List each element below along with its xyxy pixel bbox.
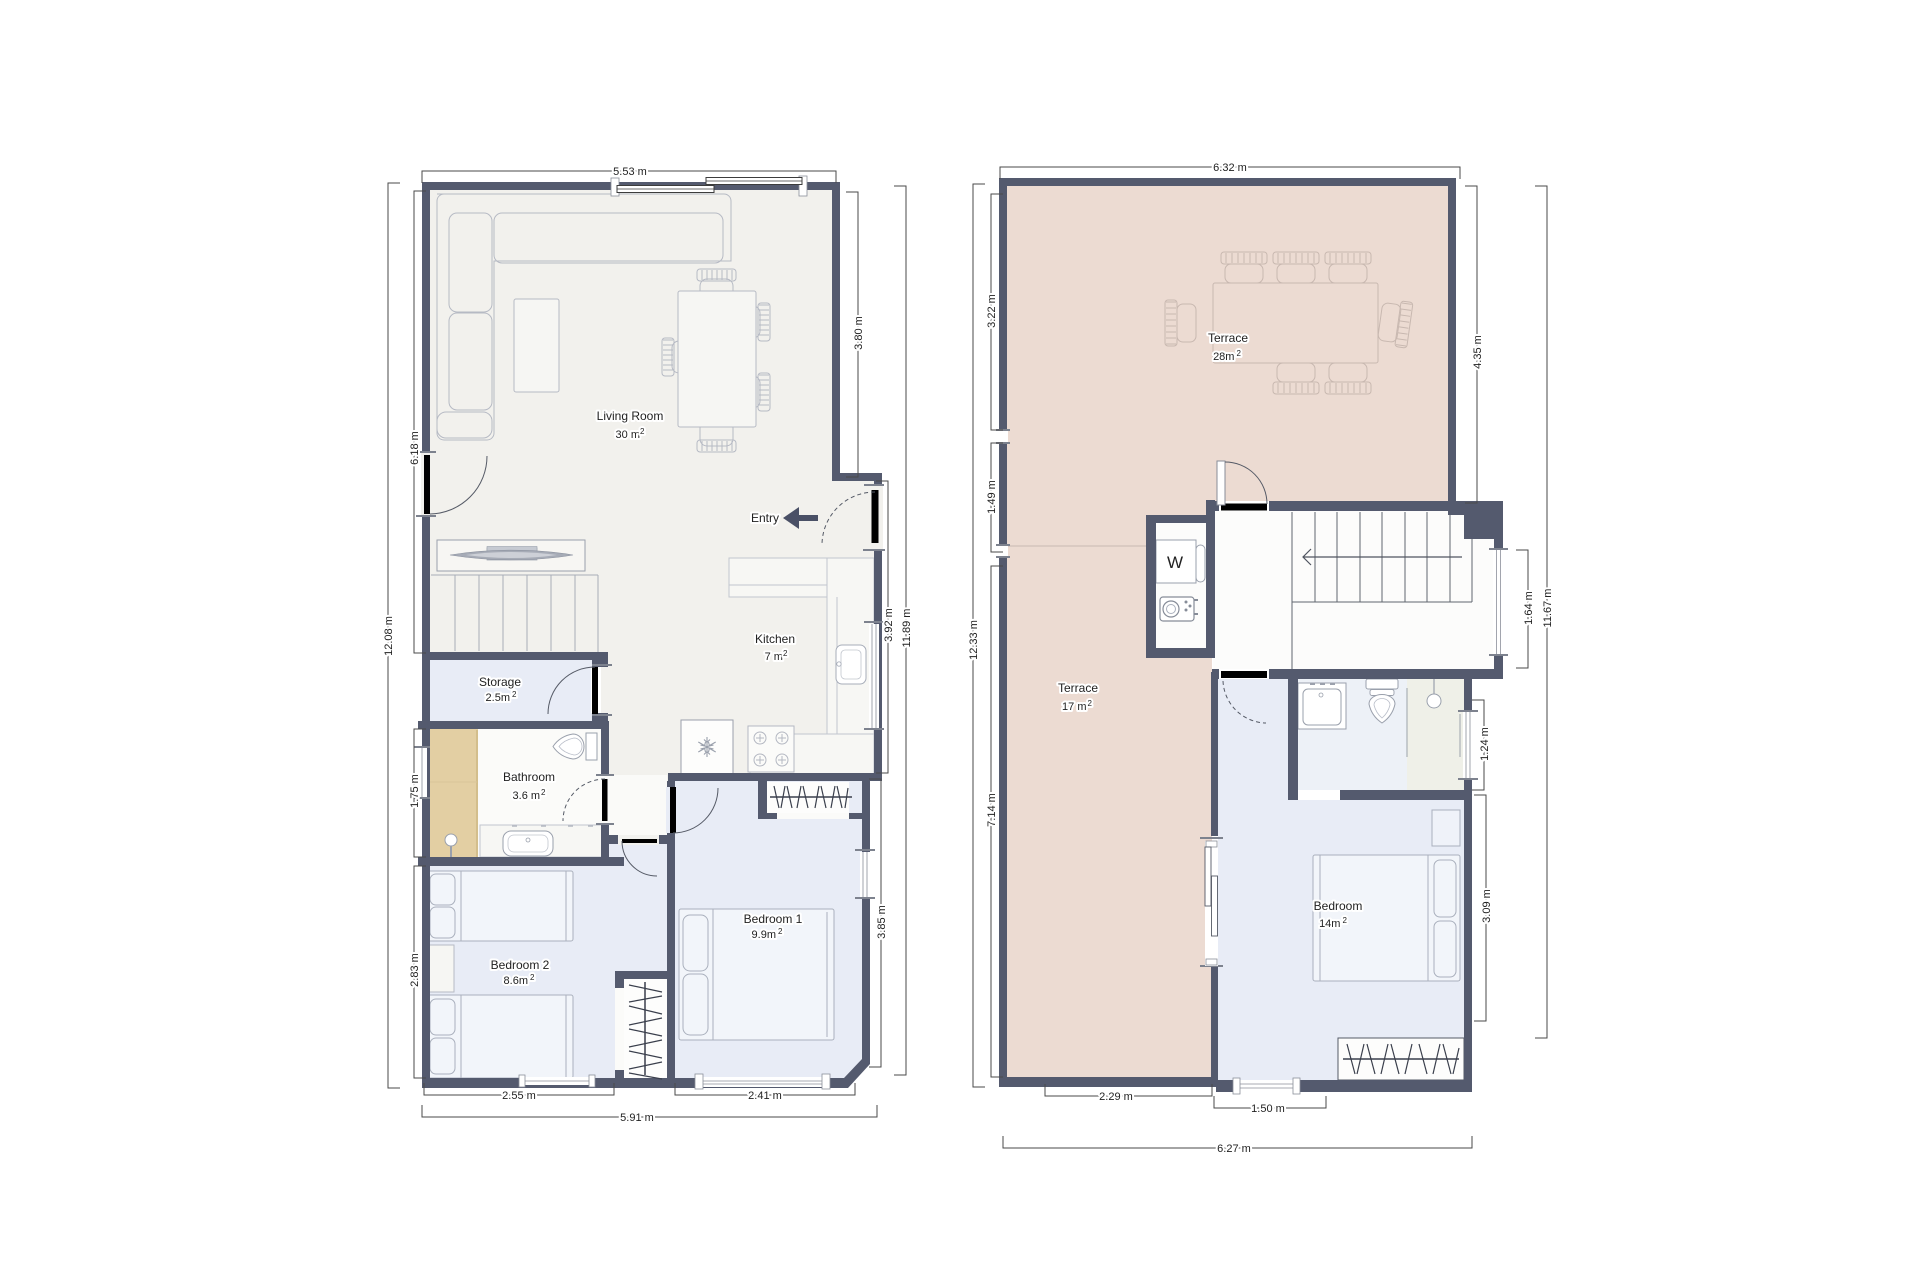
svg-text:7.14 m: 7.14 m: [986, 793, 998, 827]
svg-text:5.91 m: 5.91 m: [620, 1112, 654, 1124]
svg-text:6.27 m: 6.27 m: [1217, 1143, 1251, 1155]
svg-text:1.75 m: 1.75 m: [409, 774, 421, 808]
svg-text:11.67 m: 11.67 m: [1542, 589, 1554, 628]
svg-text:Bedroom: Bedroom: [1314, 899, 1363, 913]
svg-text:2.83 m: 2.83 m: [409, 953, 421, 987]
svg-text:Terrace: Terrace: [1058, 681, 1098, 695]
svg-text:2.41 m: 2.41 m: [748, 1090, 782, 1102]
svg-text:Kitchen: Kitchen: [755, 632, 795, 646]
svg-text:11.89 m: 11.89 m: [901, 609, 913, 648]
svg-text:3.92 m: 3.92 m: [883, 608, 895, 642]
svg-text:3.22 m: 3.22 m: [986, 294, 998, 328]
svg-text:4.35 m: 4.35 m: [1472, 335, 1484, 369]
svg-text:1.64 m: 1.64 m: [1523, 591, 1535, 625]
svg-text:12.08 m: 12.08 m: [383, 616, 395, 656]
svg-text:5.53 m: 5.53 m: [613, 166, 647, 178]
svg-text:6.32 m: 6.32 m: [1213, 162, 1247, 174]
svg-text:1.49 m: 1.49 m: [986, 480, 998, 514]
svg-text:6.18 m: 6.18 m: [409, 431, 421, 465]
svg-text:3.85 m: 3.85 m: [876, 905, 888, 939]
svg-text:Terrace: Terrace: [1208, 331, 1248, 345]
svg-text:Storage: Storage: [479, 675, 521, 689]
svg-text:1.24 m: 1.24 m: [1479, 727, 1491, 761]
svg-text:2.29 m: 2.29 m: [1099, 1091, 1133, 1103]
svg-text:3.80 m: 3.80 m: [853, 316, 865, 350]
svg-text:Bedroom 2: Bedroom 2: [491, 958, 550, 972]
svg-text:12.33 m: 12.33 m: [968, 620, 980, 660]
svg-text:2.55 m: 2.55 m: [502, 1090, 536, 1102]
svg-text:Bedroom 1: Bedroom 1: [744, 912, 803, 926]
svg-text:Bathroom: Bathroom: [503, 770, 555, 784]
svg-text:3.09 m: 3.09 m: [1481, 889, 1493, 923]
svg-text:W: W: [1167, 553, 1183, 572]
svg-text:Entry: Entry: [751, 511, 779, 525]
svg-text:1.50 m: 1.50 m: [1251, 1103, 1285, 1115]
svg-text:Living Room: Living Room: [597, 409, 664, 423]
